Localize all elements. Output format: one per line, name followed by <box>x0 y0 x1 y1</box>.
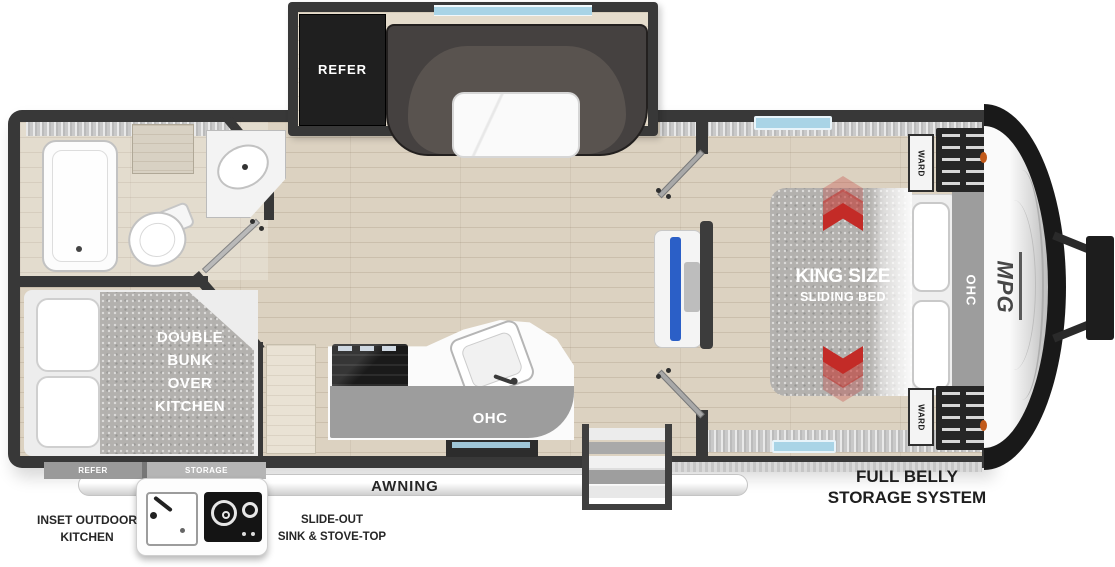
bathtub-drain <box>76 246 82 252</box>
full-belly-callout: FULL BELLY STORAGE SYSTEM <box>812 466 1002 508</box>
underbody-refer-segment: REFER <box>44 462 142 479</box>
awning-label: AWNING <box>330 477 480 497</box>
outdoor-sink-drain <box>180 528 185 533</box>
bathroom-door-handle <box>250 219 255 224</box>
slideout-kitchen-callout: SLIDE-OUT SINK & STOVE-TOP <box>272 512 392 546</box>
step-tread-4 <box>589 470 665 484</box>
bathroom-cabinet <box>132 124 194 174</box>
bed-pillow-2 <box>912 300 950 390</box>
tv-screen <box>670 237 681 341</box>
brand-logo: MPG <box>992 260 1018 313</box>
king-bed-title: KING SIZE <box>782 266 904 288</box>
outdoor-stove <box>204 492 262 542</box>
bunk-pillow-1 <box>36 298 100 372</box>
king-bed-subtitle: SLIDING BED <box>782 290 904 304</box>
bathtub <box>42 140 118 272</box>
wardrobe-top-label: WARD <box>917 150 926 176</box>
underbody-refer-label: REFER <box>78 466 108 475</box>
wardrobe-top-shelves-1 <box>942 134 960 186</box>
outdoor-sink <box>146 492 198 546</box>
toilet-seat <box>135 218 180 262</box>
underbody-storage-label: STORAGE <box>185 466 228 475</box>
kitchen-ohc-label: OHC <box>450 406 530 430</box>
bathroom-bottom-wall <box>18 276 208 287</box>
outdoor-stove-knob-1 <box>242 532 246 536</box>
outdoor-burner-small <box>242 502 258 518</box>
floorplan-canvas: REFER DOUBLE BUNK OVER KITCHEN <box>0 0 1115 567</box>
outdoor-burner-large <box>211 500 237 526</box>
outdoor-sink-faucet-dot <box>150 512 157 519</box>
wardrobe-bottom-label-box: WARD <box>908 388 934 446</box>
brand-logo-badge <box>1019 252 1022 320</box>
bedroom-door-bottom-handle-2 <box>666 368 671 373</box>
bedroom-window-bottom <box>772 440 836 453</box>
tv-back-panel <box>700 221 713 349</box>
steps-rail-right <box>665 424 672 504</box>
bed-ohc-label: OHC <box>963 274 978 306</box>
step-tread-2 <box>589 442 665 454</box>
bedroom-door-bottom-handle <box>656 374 661 379</box>
wardrobe-bottom-label: WARD <box>917 404 926 430</box>
underbody-bar: REFER STORAGE <box>44 462 266 479</box>
bathroom-door-handle-2 <box>259 226 264 231</box>
wardrobe-top-label-box: WARD <box>908 134 934 192</box>
brand-logo-wrap: MPG <box>988 242 1022 332</box>
outdoor-stove-knob-2 <box>251 532 255 536</box>
steps-base-rail <box>582 504 672 510</box>
bed-slide-arrows-up <box>823 176 863 234</box>
step-tread-1 <box>589 428 665 440</box>
bathroom-wall-lining <box>26 122 230 136</box>
tv-mount-bracket <box>684 262 700 312</box>
kitchen-bottom-window-glass <box>452 442 530 448</box>
bunk-label: DOUBLE BUNK OVER KITCHEN <box>126 326 254 418</box>
step-tread-5 <box>589 486 665 498</box>
wardrobe-bottom-shelves-1 <box>942 392 960 444</box>
underbody-storage-segment: STORAGE <box>147 462 266 479</box>
steps-rail-left <box>582 424 589 504</box>
refrigerator-label: REFER <box>300 59 385 79</box>
wardrobe-bottom-cabinet <box>936 386 990 450</box>
pantry-cabinet <box>266 344 316 454</box>
bathroom-sink-faucet <box>242 164 248 170</box>
bunk-pillow-2 <box>36 376 100 448</box>
outdoor-kitchen-callout: INSET OUTDOOR KITCHEN <box>24 512 150 546</box>
refrigerator-box: REFER <box>299 14 386 126</box>
outdoor-burner-large-center <box>222 511 230 519</box>
stove-knob-1 <box>338 346 352 351</box>
stove-knob-2 <box>360 346 374 351</box>
propane-battery-box <box>1086 236 1114 340</box>
bedroom-door-top-handle <box>656 188 661 193</box>
bed-pillow-1 <box>912 202 950 292</box>
entry-steps <box>582 424 672 510</box>
bedroom-window-top <box>754 116 832 130</box>
step-tread-3 <box>589 456 665 468</box>
bedroom-divider-post-bottom <box>696 410 708 458</box>
kitchen-bottom-window <box>446 440 538 457</box>
marker-light-top <box>980 152 987 163</box>
bedroom-divider-post-top <box>696 122 708 154</box>
bedroom-door-top-handle-2 <box>666 194 671 199</box>
dinette-table <box>452 92 580 158</box>
wardrobe-bottom-shelves-2 <box>966 392 984 444</box>
outdoor-sink-faucet <box>153 496 173 513</box>
king-bed-label: KING SIZE SLIDING BED <box>782 266 904 304</box>
marker-light-bottom <box>980 420 987 431</box>
stove-knob-3 <box>382 346 396 351</box>
dinette-window <box>434 5 592 16</box>
bed-slide-arrows-down <box>823 346 863 404</box>
